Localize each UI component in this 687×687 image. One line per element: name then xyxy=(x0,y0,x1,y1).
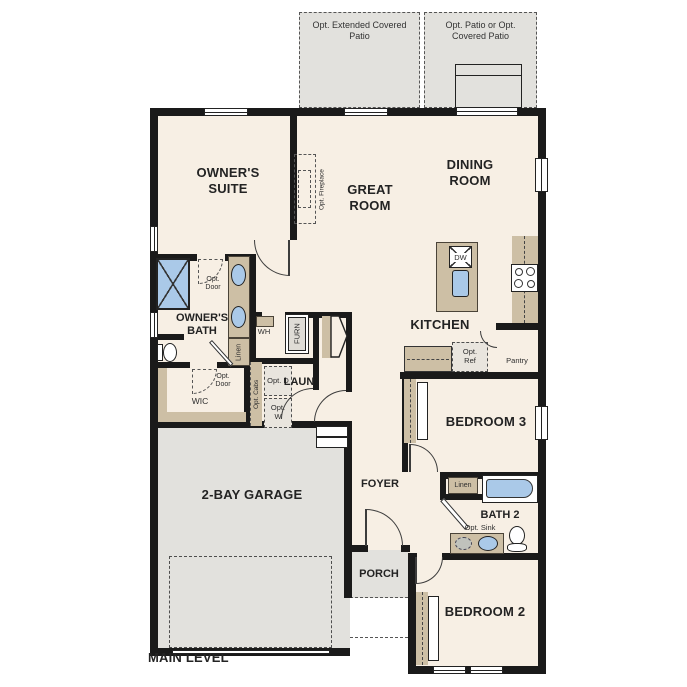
wic-label: WIC xyxy=(182,397,218,407)
window-bedroom3-right xyxy=(535,406,548,440)
wall-pantry-top xyxy=(496,323,538,330)
kitchen-label: KITCHEN xyxy=(404,317,476,333)
stove xyxy=(511,264,538,292)
opt-fireplace-label: Opt. Fireplace xyxy=(316,156,328,224)
garage-step-1 xyxy=(316,426,348,437)
bath2-label: BATH 2 xyxy=(474,509,526,522)
wall-kitchen-bottom xyxy=(400,372,546,379)
wic-shelf-bottom xyxy=(158,412,246,422)
bedroom3-closet-rod xyxy=(410,379,411,443)
laundry-label: LAUN xyxy=(280,376,318,389)
dishwasher-label: DW xyxy=(452,253,469,262)
kitchen-sink xyxy=(452,270,469,297)
water-heater-label: WH xyxy=(252,328,276,336)
patio-stoop xyxy=(455,64,522,108)
window-bedroom2-a xyxy=(433,666,466,674)
patio-right-label: Opt. Patio or Opt. Covered Patio xyxy=(432,20,529,43)
opt-sink-label: Opt. Sink xyxy=(456,524,504,532)
window-dining-right xyxy=(535,158,548,192)
opt-fridge-label: Opt. Ref xyxy=(457,348,483,365)
front-door-leaf xyxy=(365,509,367,546)
opt-cabs: Opt. Cabs xyxy=(250,362,262,426)
bathtub xyxy=(482,475,538,503)
foyer-label: FOYER xyxy=(356,478,404,491)
wall-foyer-front-b xyxy=(401,545,410,552)
shower xyxy=(156,258,190,310)
bedroom2-label: BEDROOM 2 xyxy=(438,604,532,620)
linen-bath2: Linen xyxy=(448,477,478,494)
burner-2 xyxy=(526,267,535,276)
burner-3 xyxy=(514,279,523,288)
sink-owners-1 xyxy=(231,264,246,286)
sink-bath2 xyxy=(478,536,498,551)
opt-fireplace-inner xyxy=(298,170,311,208)
window-bedroom2-b xyxy=(470,666,503,674)
wall-right xyxy=(538,108,546,674)
bedroom3-closet-door xyxy=(417,382,428,440)
wall-bath-right xyxy=(250,254,256,364)
bedroom2-closet-rod xyxy=(422,592,423,665)
walkway xyxy=(350,598,408,638)
wall-left xyxy=(150,108,158,656)
owners-bath-label: OWNER'S BATH xyxy=(164,312,240,338)
kitchen-counter-low xyxy=(404,346,452,372)
patio-stoop-line xyxy=(456,75,521,76)
toilet-bath2-base xyxy=(507,543,527,552)
great-room-label: GREAT ROOM xyxy=(332,182,408,214)
wall-foyer-front-a xyxy=(344,545,368,552)
window-suite-top xyxy=(204,108,248,116)
wall-hall-right xyxy=(346,358,352,392)
bedroom3-door-leaf xyxy=(409,444,411,472)
sliding-door-dining xyxy=(456,107,518,116)
counter-low-dash xyxy=(407,359,449,360)
floor-plan: Opt. Extended Covered Patio Opt. Patio o… xyxy=(0,0,687,687)
opt-door-bath-label: Opt. Door xyxy=(198,276,228,292)
garage-step-2 xyxy=(316,437,348,448)
window-bath-left xyxy=(150,312,158,338)
furnace: FURN xyxy=(285,314,309,354)
main-level-label: MAIN LEVEL xyxy=(148,650,268,666)
bedroom3-label: BEDROOM 3 xyxy=(440,414,532,430)
dining-room-label: DINING ROOM xyxy=(428,157,512,189)
opt-fridge: Opt. Ref xyxy=(452,342,488,372)
wall-utility-right xyxy=(313,312,319,364)
window-greatroom-top xyxy=(344,108,388,116)
garage-label: 2-BAY GARAGE xyxy=(200,487,304,503)
bathtub-basin xyxy=(486,479,533,498)
coat-closet-door-icon xyxy=(330,315,348,358)
porch-label: PORCH xyxy=(352,568,406,581)
pantry-label: Pantry xyxy=(496,357,538,365)
patio-left-label: Opt. Extended Covered Patio xyxy=(303,20,416,43)
dishwasher: DW xyxy=(449,246,472,268)
burner-1 xyxy=(515,268,523,276)
window-suite-left xyxy=(150,226,158,252)
opt-door-wic-label: Opt. Door xyxy=(208,373,238,389)
garage-door-outline xyxy=(169,556,332,648)
water-heater xyxy=(256,316,274,327)
bedroom3-closet-shelf xyxy=(404,379,416,443)
bedroom2-door-leaf xyxy=(415,557,417,584)
wall-linen2-bottom xyxy=(444,494,482,500)
suite-door-leaf xyxy=(288,240,290,276)
owners-suite-label: OWNER'S SUITE xyxy=(178,165,278,197)
toilet-owners-bowl xyxy=(163,343,177,362)
opt-sink-oval xyxy=(455,537,472,550)
bedroom2-closet-shelf xyxy=(416,592,428,665)
furnace-label: FURN xyxy=(288,317,306,351)
burner-4 xyxy=(527,280,535,288)
